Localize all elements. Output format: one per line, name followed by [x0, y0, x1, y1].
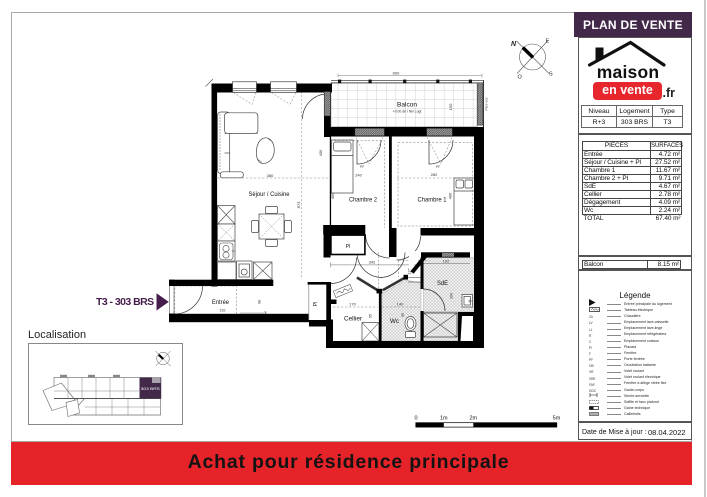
svg-text:873: 873 [296, 201, 301, 208]
svg-text:Wc: Wc [390, 319, 399, 325]
svg-text:140: 140 [397, 302, 404, 307]
svg-text:Chambre 2: Chambre 2 [349, 197, 377, 204]
svg-text:192: 192 [220, 309, 226, 313]
svg-text:PF: PF [436, 165, 440, 169]
svg-text:600: 600 [393, 70, 400, 75]
svg-text:N: N [511, 41, 517, 48]
svg-text:406: 406 [448, 192, 453, 199]
svg-text:380: 380 [267, 173, 274, 178]
svg-text:300: 300 [450, 293, 454, 299]
svg-text:240: 240 [355, 173, 362, 178]
svg-text:98: 98 [258, 300, 262, 304]
svg-text:170: 170 [349, 302, 356, 307]
svg-text:150: 150 [448, 103, 453, 110]
svg-text:Chambre 1: Chambre 1 [418, 197, 447, 204]
svg-text:342: 342 [369, 259, 376, 264]
svg-text:Balcon: Balcon [397, 103, 417, 109]
svg-text:436: 436 [318, 149, 323, 156]
svg-text:Cellier: Cellier [344, 316, 363, 323]
svg-text:Entrée: Entrée [212, 300, 230, 306]
svg-text:282: 282 [431, 172, 438, 177]
svg-text:5m: 5m [553, 416, 561, 422]
svg-text:95: 95 [369, 314, 373, 318]
svg-text:O: O [518, 75, 523, 81]
svg-text:S: S [549, 72, 553, 78]
svg-text:2m: 2m [469, 416, 477, 422]
svg-text:95: 95 [401, 313, 405, 317]
svg-text:PF: PF [360, 165, 364, 169]
svg-text:Pare-vue: Pare-vue [485, 97, 489, 110]
svg-text:E: E [546, 39, 550, 45]
svg-text:0: 0 [414, 416, 417, 422]
svg-text:Pl: Pl [313, 302, 319, 306]
svg-text:Séjour / Cuisine: Séjour / Cuisine [249, 191, 291, 198]
svg-text:1m: 1m [440, 416, 448, 422]
svg-text:+0.00 dé / Niv Logt: +0.00 dé / Niv Logt [393, 110, 422, 114]
svg-text:Pl: Pl [346, 244, 350, 250]
svg-text:192: 192 [443, 258, 450, 263]
svg-text:SdE: SdE [437, 280, 449, 287]
